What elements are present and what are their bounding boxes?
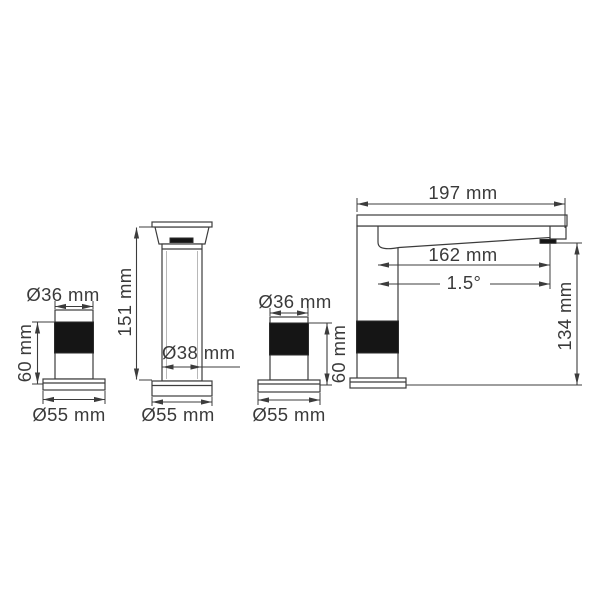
- dim-label-spout-front-base-diameter: Ø55 mm: [141, 404, 214, 425]
- dim-label-spout-side-height: 134 mm: [554, 281, 575, 350]
- dim-label-spout-side-length: 197 mm: [428, 182, 497, 203]
- spout-side-grip-band: [357, 321, 399, 353]
- spout-side-body: [357, 226, 398, 381]
- dim-label-spout-side-angle: 1.5°: [447, 272, 482, 293]
- dim-label-spout-front-body-diameter: Ø38 mm: [162, 342, 235, 363]
- handle-right-base: [258, 380, 320, 392]
- dim-handle-right-base: Ø55 mm: [252, 393, 325, 425]
- dim-handle-right-top: Ø36 mm: [258, 291, 331, 316]
- handle-right-grip-band: [270, 323, 309, 355]
- drawing-svg: Ø36 mm 60 mm Ø55 mm: [0, 0, 600, 600]
- spout-front-outlet-slot: [170, 238, 193, 243]
- spout-front-view: 151 mm Ø38 mm Ø55 mm: [114, 222, 240, 425]
- handle-left-view: Ø36 mm 60 mm Ø55 mm: [14, 284, 106, 425]
- dim-label-spout-side-reach: 162 mm: [428, 244, 497, 265]
- dim-spout-side-angle: 1.5°: [378, 272, 550, 293]
- spout-front-top-plate: [152, 222, 212, 227]
- handle-right-view: Ø36 mm 60 mm Ø55 mm: [252, 291, 349, 425]
- handle-left-base: [43, 379, 105, 390]
- dim-label-handle-left-height: 60 mm: [14, 324, 35, 383]
- dim-handle-left-top: Ø36 mm: [26, 284, 99, 309]
- faucet-dimension-drawing: Ø36 mm 60 mm Ø55 mm: [0, 0, 600, 600]
- spout-front-base: [152, 381, 212, 396]
- dim-label-handle-left-top-diameter: Ø36 mm: [26, 284, 99, 305]
- dim-handle-left-height: 60 mm: [14, 322, 55, 384]
- dim-spout-front-base: Ø55 mm: [141, 397, 214, 425]
- dim-label-handle-right-base-diameter: Ø55 mm: [252, 404, 325, 425]
- dim-spout-front-height: 151 mm: [114, 227, 152, 380]
- dim-handle-right-height: 60 mm: [308, 323, 349, 385]
- spout-side-top-plank: [357, 215, 567, 226]
- dim-label-spout-front-height: 151 mm: [114, 267, 135, 336]
- spout-side-base: [350, 378, 406, 388]
- spout-side-aerator: [540, 240, 556, 244]
- dim-label-handle-right-top-diameter: Ø36 mm: [258, 291, 331, 312]
- handle-left-grip-band: [55, 322, 94, 353]
- dim-handle-left-base: Ø55 mm: [32, 391, 105, 425]
- spout-side-view: 197 mm 162 mm 1.5° 134 mm: [350, 182, 582, 388]
- dim-label-handle-left-base-diameter: Ø55 mm: [32, 404, 105, 425]
- dim-label-handle-right-height: 60 mm: [328, 325, 349, 384]
